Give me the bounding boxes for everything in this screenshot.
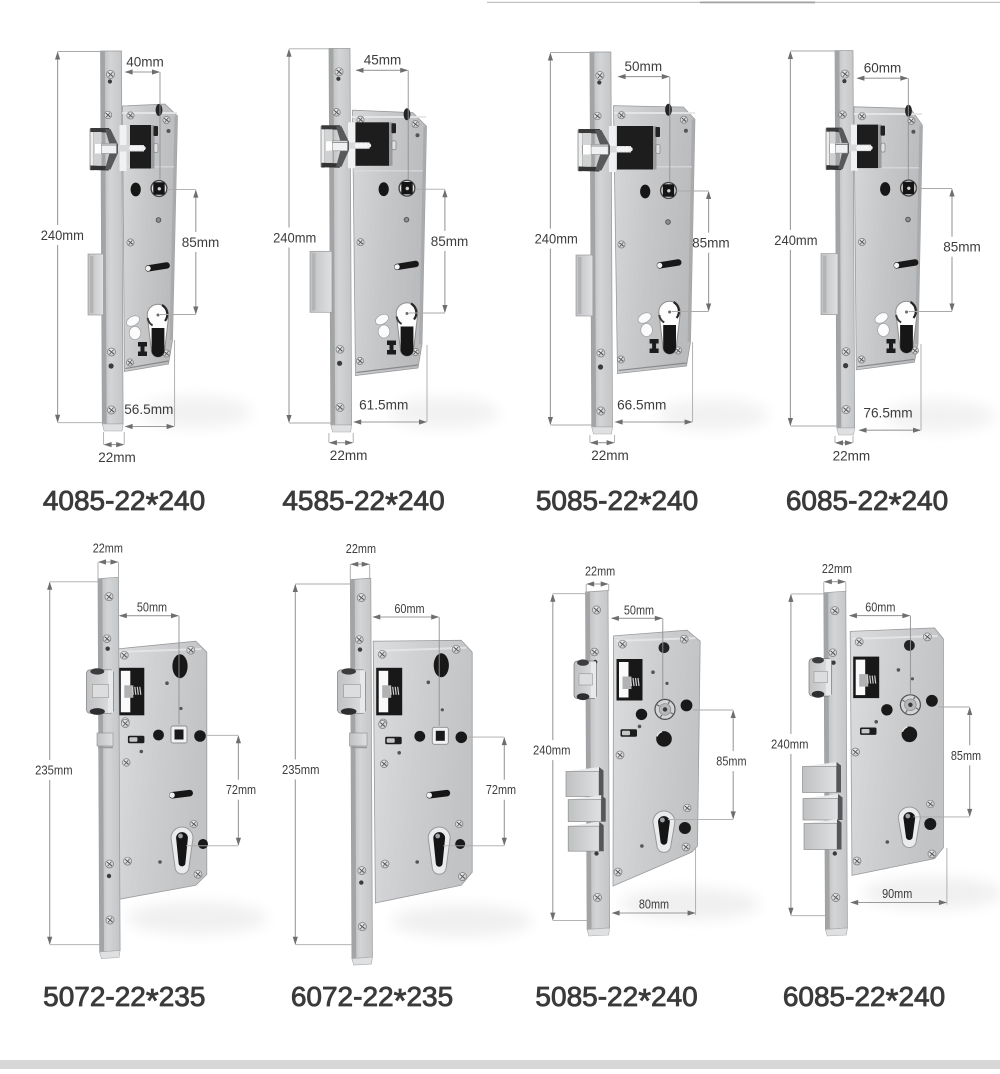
svg-text:6072-22*235: 6072-22*235 xyxy=(291,981,453,1019)
svg-text:60mm: 60mm xyxy=(864,60,902,76)
svg-text:90mm: 90mm xyxy=(882,887,912,901)
svg-text:50mm: 50mm xyxy=(625,58,663,74)
svg-text:22mm: 22mm xyxy=(833,447,871,463)
svg-text:85mm: 85mm xyxy=(182,234,220,250)
svg-text:56.5mm: 56.5mm xyxy=(124,401,173,417)
svg-text:235mm: 235mm xyxy=(35,764,73,778)
svg-text:76.5mm: 76.5mm xyxy=(863,405,912,421)
svg-text:72mm: 72mm xyxy=(486,783,516,797)
svg-text:40mm: 40mm xyxy=(126,53,164,69)
svg-text:45mm: 45mm xyxy=(364,52,402,68)
svg-text:85mm: 85mm xyxy=(943,239,981,255)
svg-text:85mm: 85mm xyxy=(431,233,469,249)
svg-text:6085-22*240: 6085-22*240 xyxy=(783,981,945,1019)
svg-text:5085-22*240: 5085-22*240 xyxy=(536,485,698,523)
svg-text:4085-22*240: 4085-22*240 xyxy=(43,485,205,523)
svg-text:240mm: 240mm xyxy=(774,232,817,248)
svg-text:61.5mm: 61.5mm xyxy=(359,397,408,413)
svg-text:240mm: 240mm xyxy=(533,744,571,758)
svg-text:22mm: 22mm xyxy=(330,447,368,463)
svg-text:240mm: 240mm xyxy=(535,231,578,247)
svg-text:240mm: 240mm xyxy=(771,737,809,751)
svg-text:235mm: 235mm xyxy=(282,763,320,777)
svg-text:85mm: 85mm xyxy=(716,755,746,769)
svg-text:22mm: 22mm xyxy=(585,564,615,578)
svg-text:5072-22*235: 5072-22*235 xyxy=(43,981,205,1019)
svg-text:4585-22*240: 4585-22*240 xyxy=(282,485,444,523)
svg-text:6085-22*240: 6085-22*240 xyxy=(786,485,948,523)
svg-text:60mm: 60mm xyxy=(394,602,424,616)
svg-text:50mm: 50mm xyxy=(624,603,654,617)
svg-text:66.5mm: 66.5mm xyxy=(617,397,666,413)
svg-text:85mm: 85mm xyxy=(951,749,981,763)
svg-text:22mm: 22mm xyxy=(591,447,629,463)
svg-text:72mm: 72mm xyxy=(226,783,256,797)
svg-text:240mm: 240mm xyxy=(273,230,316,246)
svg-text:80mm: 80mm xyxy=(639,898,669,912)
svg-text:50mm: 50mm xyxy=(137,601,167,615)
svg-text:85mm: 85mm xyxy=(692,235,730,251)
svg-text:5085-22*240: 5085-22*240 xyxy=(535,981,697,1019)
svg-text:240mm: 240mm xyxy=(41,227,84,243)
svg-text:22mm: 22mm xyxy=(822,562,852,576)
svg-text:22mm: 22mm xyxy=(93,542,123,556)
svg-text:60mm: 60mm xyxy=(865,601,895,615)
svg-text:22mm: 22mm xyxy=(98,449,136,465)
svg-text:22mm: 22mm xyxy=(346,542,376,556)
